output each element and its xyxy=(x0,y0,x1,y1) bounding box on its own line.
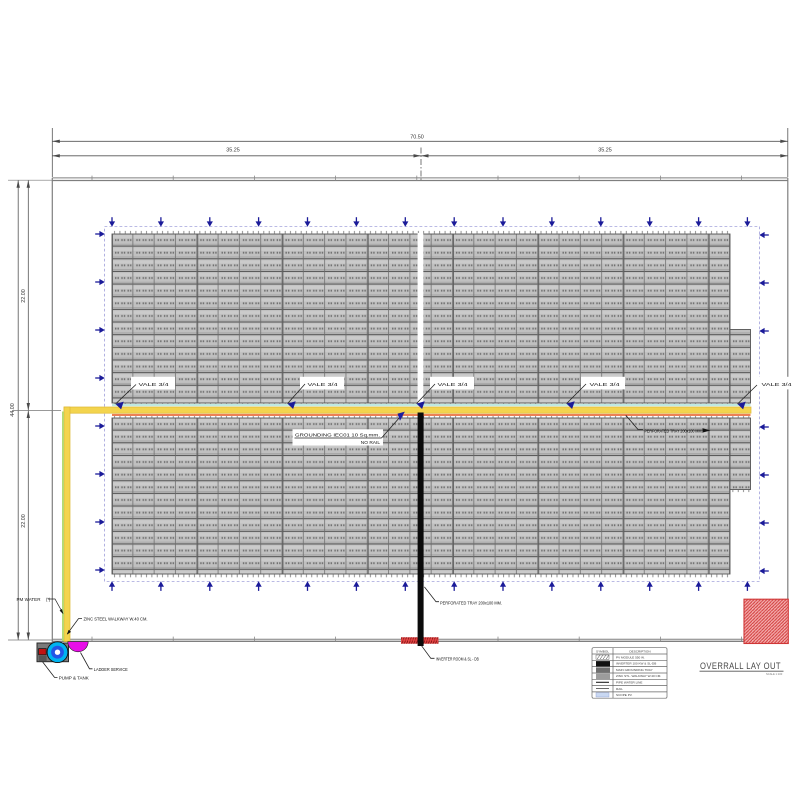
svg-text:VALE 3/4: VALE 3/4 xyxy=(762,382,792,388)
svg-text:RAIL: RAIL xyxy=(616,687,623,691)
svg-text:INVERTER ROOM & SL - DB: INVERTER ROOM & SL - DB xyxy=(436,657,479,662)
svg-text:INVERTER 100 KW & SL-DB: INVERTER 100 KW & SL-DB xyxy=(616,662,656,666)
svg-text:VALE 3/4: VALE 3/4 xyxy=(438,382,468,388)
svg-text:PUMP & TANK: PUMP & TANK xyxy=(59,676,89,681)
svg-text:70.50: 70.50 xyxy=(410,135,424,141)
svg-text:22.00: 22.00 xyxy=(21,289,27,303)
svg-text:22.00: 22.00 xyxy=(21,514,27,528)
svg-text:LADDER SERVICE: LADDER SERVICE xyxy=(94,667,128,672)
svg-text:(″): (″) xyxy=(46,597,51,602)
svg-text:VALE 3/4: VALE 3/4 xyxy=(590,382,620,388)
svg-text:PIPE WATER LINE: PIPE WATER LINE xyxy=(616,681,642,685)
svg-text:PV MODULE 550 W.: PV MODULE 550 W. xyxy=(616,655,645,659)
svg-text:NO RAIL: NO RAIL xyxy=(361,440,381,446)
svg-text:VALE 3/4: VALE 3/4 xyxy=(139,382,169,388)
svg-text:ZINC STEEL WALKWAY W.40 CM.: ZINC STEEL WALKWAY W.40 CM. xyxy=(84,617,148,622)
svg-text:SCALE 1:100: SCALE 1:100 xyxy=(766,672,783,676)
svg-text:VALE 3/4: VALE 3/4 xyxy=(308,382,338,388)
svg-text:MAIN GROUNDING TRAY: MAIN GROUNDING TRAY xyxy=(616,668,653,672)
svg-text:35.25: 35.25 xyxy=(226,148,240,154)
svg-text:PM WATER: PM WATER xyxy=(17,597,41,602)
svg-text:SCOPE PV.: SCOPE PV. xyxy=(616,693,633,697)
svg-text:44.00: 44.00 xyxy=(10,403,16,417)
svg-text:PERFORATED TRAY 200x100 MM.: PERFORATED TRAY 200x100 MM. xyxy=(440,601,502,606)
svg-text:OVERRALL LAY OUT: OVERRALL LAY OUT xyxy=(700,661,781,671)
svg-text:DESCRIPTION: DESCRIPTION xyxy=(629,649,650,653)
svg-text:SYMBOL: SYMBOL xyxy=(596,649,609,653)
svg-text:ZINC STL. WALKWAY W.40 CM.: ZINC STL. WALKWAY W.40 CM. xyxy=(616,674,661,678)
svg-text:35.25: 35.25 xyxy=(598,148,612,154)
svg-text:PERFORATED TRAY 200x100 MM.: PERFORATED TRAY 200x100 MM. xyxy=(645,428,703,433)
svg-text:GROUNDING IEC01 10 Sq.mm.: GROUNDING IEC01 10 Sq.mm. xyxy=(295,432,380,438)
